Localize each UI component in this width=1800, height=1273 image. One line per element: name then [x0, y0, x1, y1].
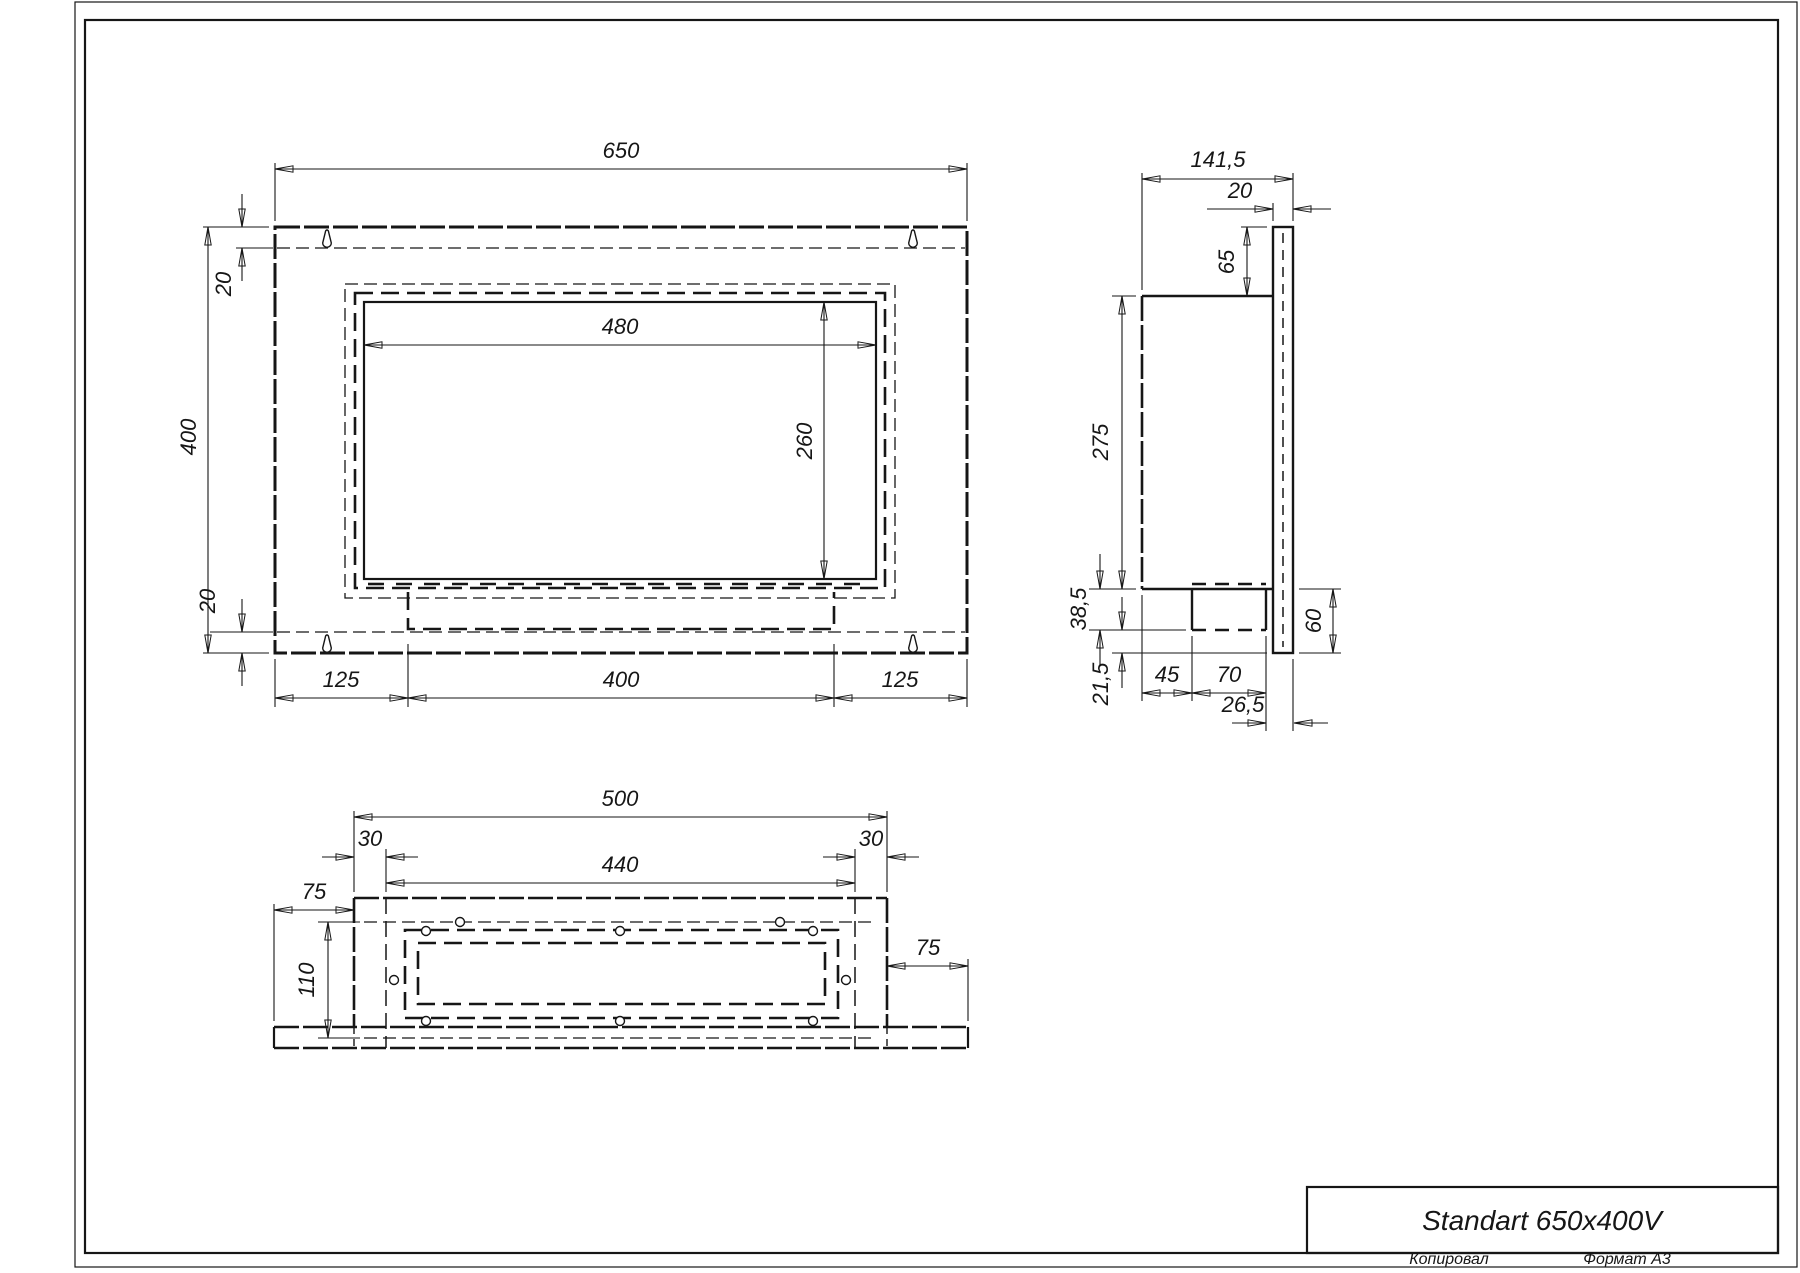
- dim-side-burner-offset: 45: [1155, 662, 1180, 687]
- dim-front-height: 400: [176, 418, 201, 455]
- title-block: Standart 650x400V Копировал Формат А3: [1307, 1187, 1778, 1268]
- dim-side-body-height: 275: [1088, 423, 1113, 461]
- hole: [456, 918, 465, 927]
- dim-top-body-width: 500: [602, 786, 639, 811]
- hole: [422, 927, 431, 936]
- hole: [390, 976, 399, 985]
- drawing-sheet: 650 400 20 20 480 260 125 400 125: [0, 0, 1800, 1273]
- keyhole-slot-icon: [323, 635, 332, 652]
- hole: [809, 1017, 818, 1026]
- dim-side-below-body: 38,5: [1066, 587, 1091, 631]
- dim-side-foot: 21,5: [1088, 662, 1113, 707]
- drawing-canvas: 650 400 20 20 480 260 125 400 125: [0, 0, 1800, 1273]
- dim-front-width: 650: [603, 138, 640, 163]
- side-view-dimensions: 141,5 20 65 275 38,5 21,5 60: [1066, 147, 1341, 731]
- dim-top-inner-width: 440: [602, 852, 639, 877]
- dim-front-opening-width: 480: [602, 314, 639, 339]
- dim-top-wall-left: 30: [358, 826, 383, 851]
- top-view-dimensions: 500 30 30 440 75 75 110: [274, 786, 968, 1038]
- dim-front-bottom-right: 125: [882, 667, 919, 692]
- dim-front-bottom-offset: 20: [195, 588, 220, 614]
- dim-side-top-to-body: 65: [1214, 249, 1239, 274]
- dim-side-burner-to-front: 26,5: [1221, 692, 1266, 717]
- keyhole-slot-icon: [909, 230, 918, 247]
- front-view-dimensions: 650 400 20 20 480 260 125 400 125: [176, 138, 967, 707]
- hole: [616, 1017, 625, 1026]
- dim-top-hole-span: 110: [294, 962, 319, 998]
- dim-side-flange: 20: [1227, 178, 1253, 203]
- dim-side-bottom-height: 60: [1301, 608, 1326, 633]
- hole: [616, 927, 625, 936]
- dim-front-opening-height: 260: [792, 422, 817, 460]
- hole: [809, 927, 818, 936]
- dim-side-depth: 141,5: [1190, 147, 1246, 172]
- front-view: [275, 227, 967, 653]
- dim-top-wing-right: 75: [916, 935, 941, 960]
- title-block-title: Standart 650x400V: [1422, 1205, 1664, 1236]
- side-view: [1142, 227, 1293, 653]
- dim-top-wall-right: 30: [859, 826, 884, 851]
- footer-format-label: Формат А3: [1583, 1251, 1671, 1268]
- hole: [422, 1017, 431, 1026]
- dim-side-burner-depth: 70: [1217, 662, 1242, 687]
- top-burner-inner: [418, 943, 825, 1004]
- hole: [776, 918, 785, 927]
- sheet-frame: [75, 2, 1797, 1267]
- footer-copied-label: Копировал: [1409, 1251, 1489, 1268]
- dim-top-wing-left: 75: [302, 879, 327, 904]
- keyhole-slot-icon: [909, 635, 918, 652]
- top-view: [274, 898, 968, 1048]
- hole: [842, 976, 851, 985]
- dim-front-bottom-left: 125: [323, 667, 360, 692]
- keyhole-slot-icon: [323, 230, 332, 247]
- dim-front-bottom-center: 400: [603, 667, 640, 692]
- dim-front-top-offset: 20: [211, 271, 236, 297]
